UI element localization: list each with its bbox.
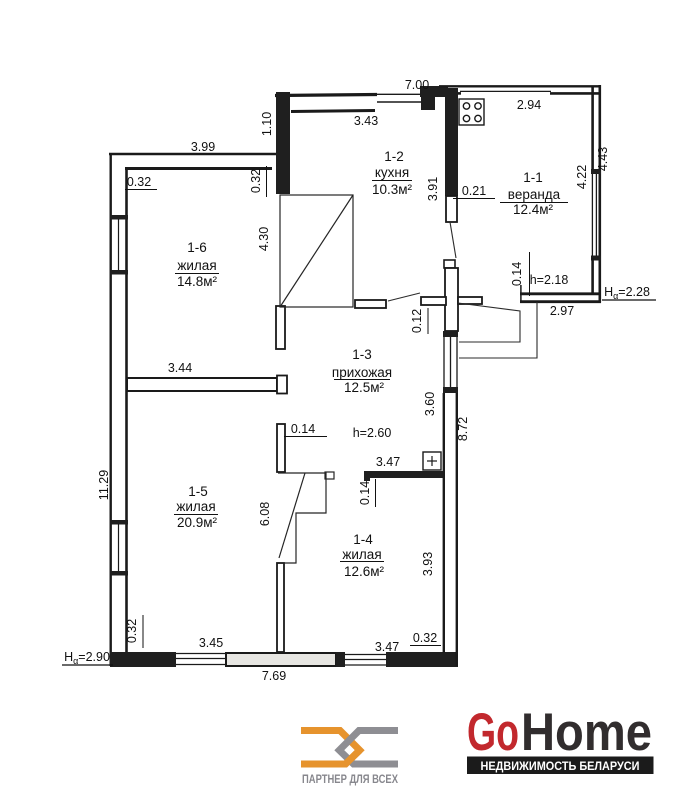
svg-text:кухня: кухня [375, 165, 409, 180]
svg-text:14.8м²: 14.8м² [177, 274, 218, 289]
svg-text:веранда: веранда [508, 187, 561, 202]
svg-text:Hα=2.90: Hα=2.90 [64, 650, 110, 666]
svg-text:2.94: 2.94 [517, 98, 541, 112]
svg-text:3.60: 3.60 [423, 392, 437, 416]
svg-text:7.00: 7.00 [405, 78, 429, 92]
svg-text:Go: Go [467, 703, 519, 762]
svg-text:4.22: 4.22 [575, 165, 589, 189]
svg-text:1-6: 1-6 [187, 240, 207, 255]
svg-text:8.72: 8.72 [456, 417, 470, 441]
svg-text:3.91: 3.91 [426, 177, 440, 201]
svg-text:1-5: 1-5 [188, 484, 208, 499]
svg-text:4.43: 4.43 [596, 147, 610, 171]
svg-text:7.69: 7.69 [262, 669, 286, 683]
svg-text:0.14: 0.14 [510, 262, 524, 286]
svg-text:3.47: 3.47 [375, 640, 399, 654]
svg-text:жилая: жилая [342, 547, 381, 562]
svg-text:11.29: 11.29 [97, 470, 111, 500]
svg-text:h=2.60: h=2.60 [353, 426, 392, 440]
svg-text:0.14: 0.14 [358, 481, 372, 505]
svg-text:жилая: жилая [176, 499, 215, 514]
svg-text:12.6м²: 12.6м² [344, 564, 385, 579]
svg-text:3.99: 3.99 [191, 140, 215, 154]
svg-text:20.9м²: 20.9м² [177, 515, 218, 530]
svg-text:0.32: 0.32 [249, 169, 263, 193]
svg-text:жилая: жилая [177, 258, 216, 273]
svg-text:1-2: 1-2 [384, 149, 404, 164]
svg-text:12.5м²: 12.5м² [344, 380, 385, 395]
svg-text:h=2.18: h=2.18 [530, 273, 569, 287]
svg-text:4.30: 4.30 [257, 227, 271, 251]
svg-text:0.14: 0.14 [291, 422, 315, 436]
svg-text:3.44: 3.44 [168, 361, 192, 375]
svg-text:3.45: 3.45 [199, 636, 223, 650]
svg-text:ПАРТНЕР ДЛЯ ВСЕХ: ПАРТНЕР ДЛЯ ВСЕХ [302, 772, 398, 786]
svg-text:прихожая: прихожая [332, 365, 392, 380]
svg-text:1-3: 1-3 [352, 347, 372, 362]
svg-text:0.32: 0.32 [127, 175, 151, 189]
svg-text:2.97: 2.97 [550, 304, 574, 318]
svg-text:3.47: 3.47 [376, 455, 400, 469]
svg-text:1-1: 1-1 [523, 170, 543, 185]
svg-text:0.12: 0.12 [410, 309, 424, 333]
svg-text:0.32: 0.32 [413, 631, 437, 645]
svg-text:1.10: 1.10 [260, 112, 274, 136]
svg-text:0.21: 0.21 [462, 184, 486, 198]
svg-text:Hα=2.28: Hα=2.28 [604, 285, 650, 301]
svg-text:Home: Home [521, 703, 652, 762]
svg-text:НЕДВИЖИМОСТЬ БЕЛАРУСИ: НЕДВИЖИМОСТЬ БЕЛАРУСИ [481, 759, 640, 773]
svg-text:0.32: 0.32 [125, 619, 139, 643]
svg-text:12.4м²: 12.4м² [513, 202, 554, 217]
svg-text:6.08: 6.08 [258, 502, 272, 526]
svg-text:3.93: 3.93 [421, 552, 435, 576]
svg-text:1-4: 1-4 [353, 532, 373, 547]
svg-text:3.43: 3.43 [354, 114, 378, 128]
svg-text:10.3м²: 10.3м² [372, 182, 413, 197]
